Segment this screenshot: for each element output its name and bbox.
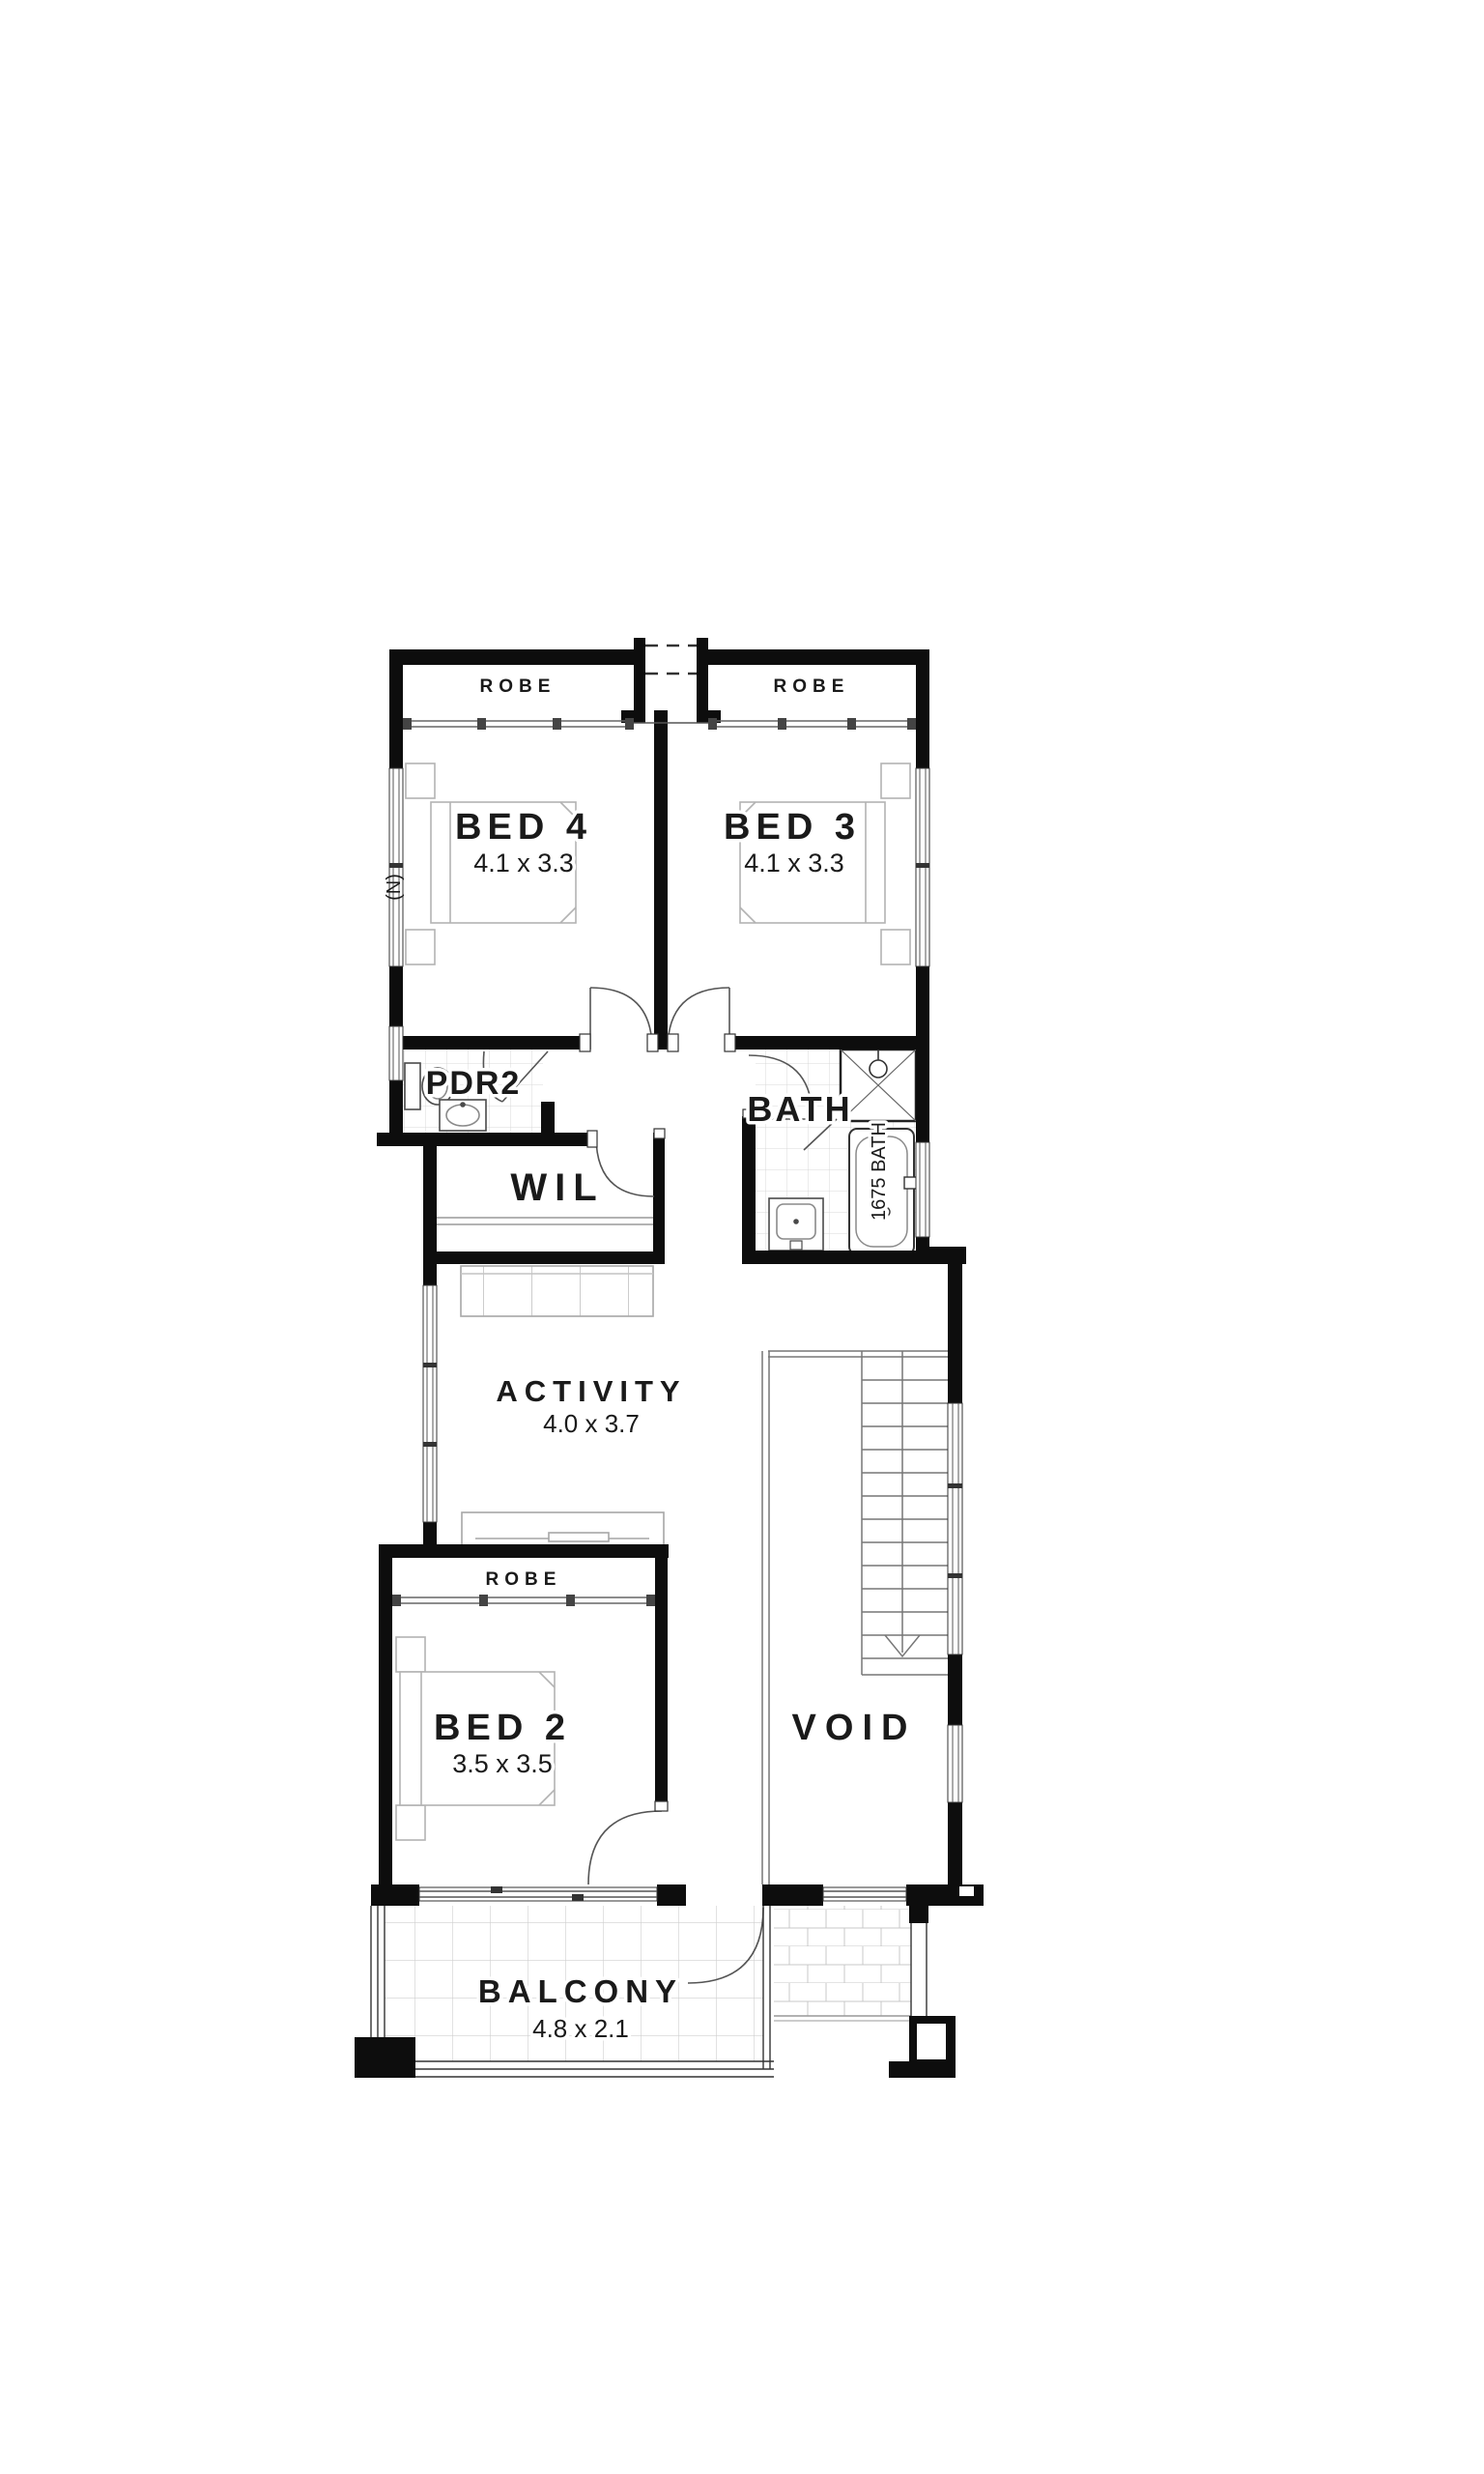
activity-label: ACTIVITY [496, 1374, 686, 1408]
bedside-table-icon [406, 763, 435, 798]
bed4-dims: 4.1 x 3.3 [473, 849, 574, 877]
bed4-door [590, 988, 652, 1050]
stairs [768, 1351, 948, 1675]
niche-wall [697, 638, 708, 723]
stair-window [948, 1403, 962, 1654]
pdr2-nib-wall [541, 1102, 555, 1135]
activity-dims: 4.0 x 3.7 [543, 1409, 640, 1438]
niche-wall [634, 638, 645, 723]
activity-window [423, 1285, 437, 1522]
bedside-table-icon [396, 1805, 425, 1840]
balcony-label: BALCONY [478, 1973, 683, 2009]
bed3-label: BED 3 [724, 807, 861, 848]
furniture [396, 763, 910, 1840]
floor-plan: ROBE ROBE ROBE BED 4 4.1 x 3.3 BED 3 4.1… [0, 0, 1484, 2474]
bath-label: BATH [747, 1089, 852, 1129]
bedside-table-icon [881, 930, 910, 964]
bed4-window [389, 768, 403, 966]
bed2-door [588, 1811, 662, 1884]
bedside-table-icon [406, 930, 435, 964]
bedside-table-icon [396, 1637, 425, 1672]
balcony-dims: 4.8 x 2.1 [532, 2014, 629, 2043]
pdr2-basin-icon [440, 1100, 486, 1131]
void-window [948, 1725, 962, 1802]
bath-vanity-icon [769, 1198, 823, 1251]
north-indicator: (N) [384, 874, 405, 901]
robe-label-bed4: ROBE [480, 676, 556, 697]
wil-shelf-icon [437, 1218, 653, 1224]
bath-window [916, 1142, 929, 1237]
activity-cabinet-icon [461, 1266, 653, 1316]
bath-tub-label: 1675 BATH [869, 1122, 890, 1221]
floor-plan-page: ROBE ROBE ROBE BED 4 4.1 x 3.3 BED 3 4.1… [0, 0, 1484, 2474]
void-edge [762, 1351, 769, 1884]
bed4-label: BED 4 [455, 807, 592, 848]
wil-door [596, 1136, 654, 1196]
bed2-dims: 3.5 x 3.5 [452, 1749, 553, 1778]
bed3-dims: 4.1 x 3.3 [744, 849, 844, 877]
terrace-brick-tiles [774, 1906, 911, 2016]
bed3-window [916, 768, 929, 966]
bedside-table-icon [881, 763, 910, 798]
robe-label-bed2: ROBE [486, 1569, 562, 1590]
wil-label: WIL [510, 1166, 604, 1209]
void-sliding-window [823, 1887, 906, 1901]
terrace-side-wall [911, 1923, 927, 2016]
pdr2-window [389, 1026, 403, 1080]
balcony-sliding-window [419, 1886, 657, 1901]
pdr2-label: PDR2 [426, 1065, 522, 1102]
bed2-label: BED 2 [434, 1708, 571, 1748]
void-label: VOID [792, 1708, 917, 1748]
robe-label-bed3: ROBE [774, 676, 850, 697]
